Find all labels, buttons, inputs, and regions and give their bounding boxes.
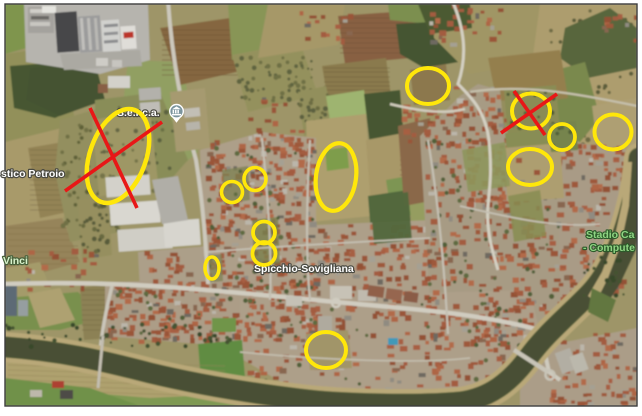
svg-text:stico Petroio: stico Petroio [1,168,65,180]
svg-text:Vinci: Vinci [3,255,28,267]
svg-text:- Compute: - Compute [583,242,635,254]
svg-text:Stadio Ca: Stadio Ca [586,229,635,241]
